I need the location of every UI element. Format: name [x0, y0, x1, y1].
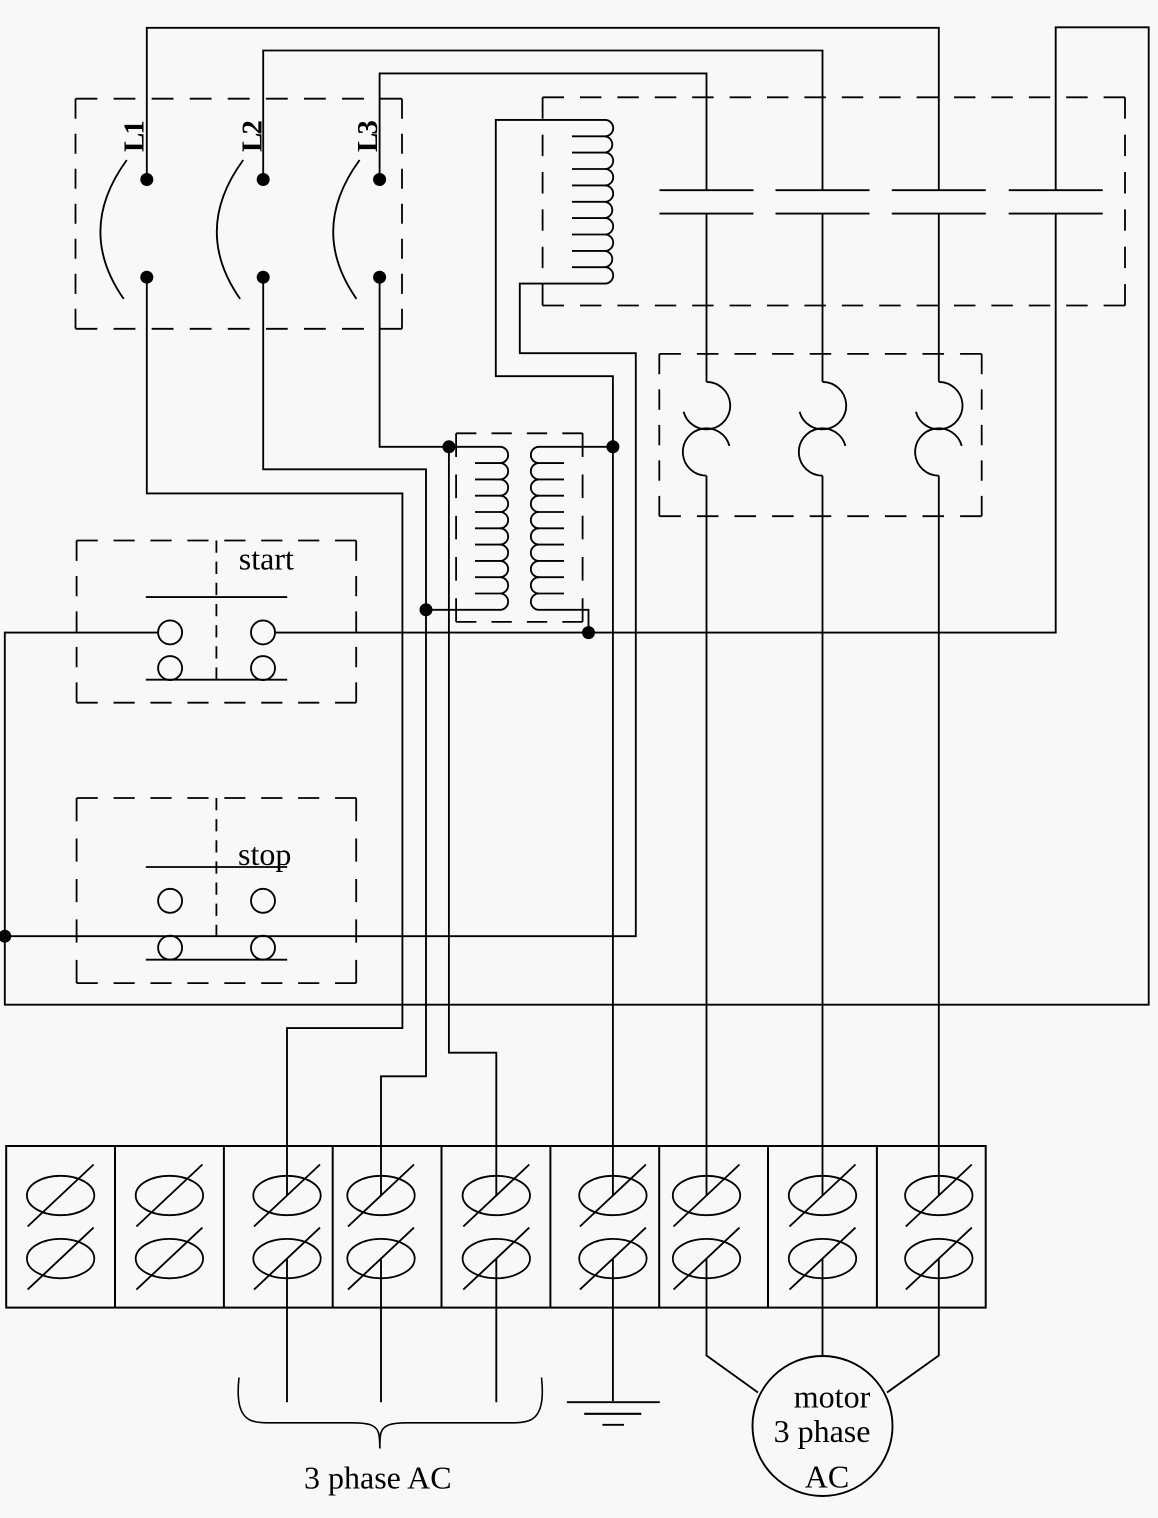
svg-text:L3: L3 [352, 121, 384, 152]
svg-text:stop: stop [238, 836, 291, 872]
svg-text:start: start [239, 541, 294, 577]
svg-text:3 phase: 3 phase [774, 1413, 871, 1449]
svg-text:motor: motor [794, 1379, 871, 1415]
svg-text:L2: L2 [236, 121, 268, 152]
svg-text:3 phase AC: 3 phase AC [304, 1460, 452, 1496]
svg-text:AC: AC [805, 1458, 849, 1494]
svg-text:L1: L1 [119, 122, 151, 152]
